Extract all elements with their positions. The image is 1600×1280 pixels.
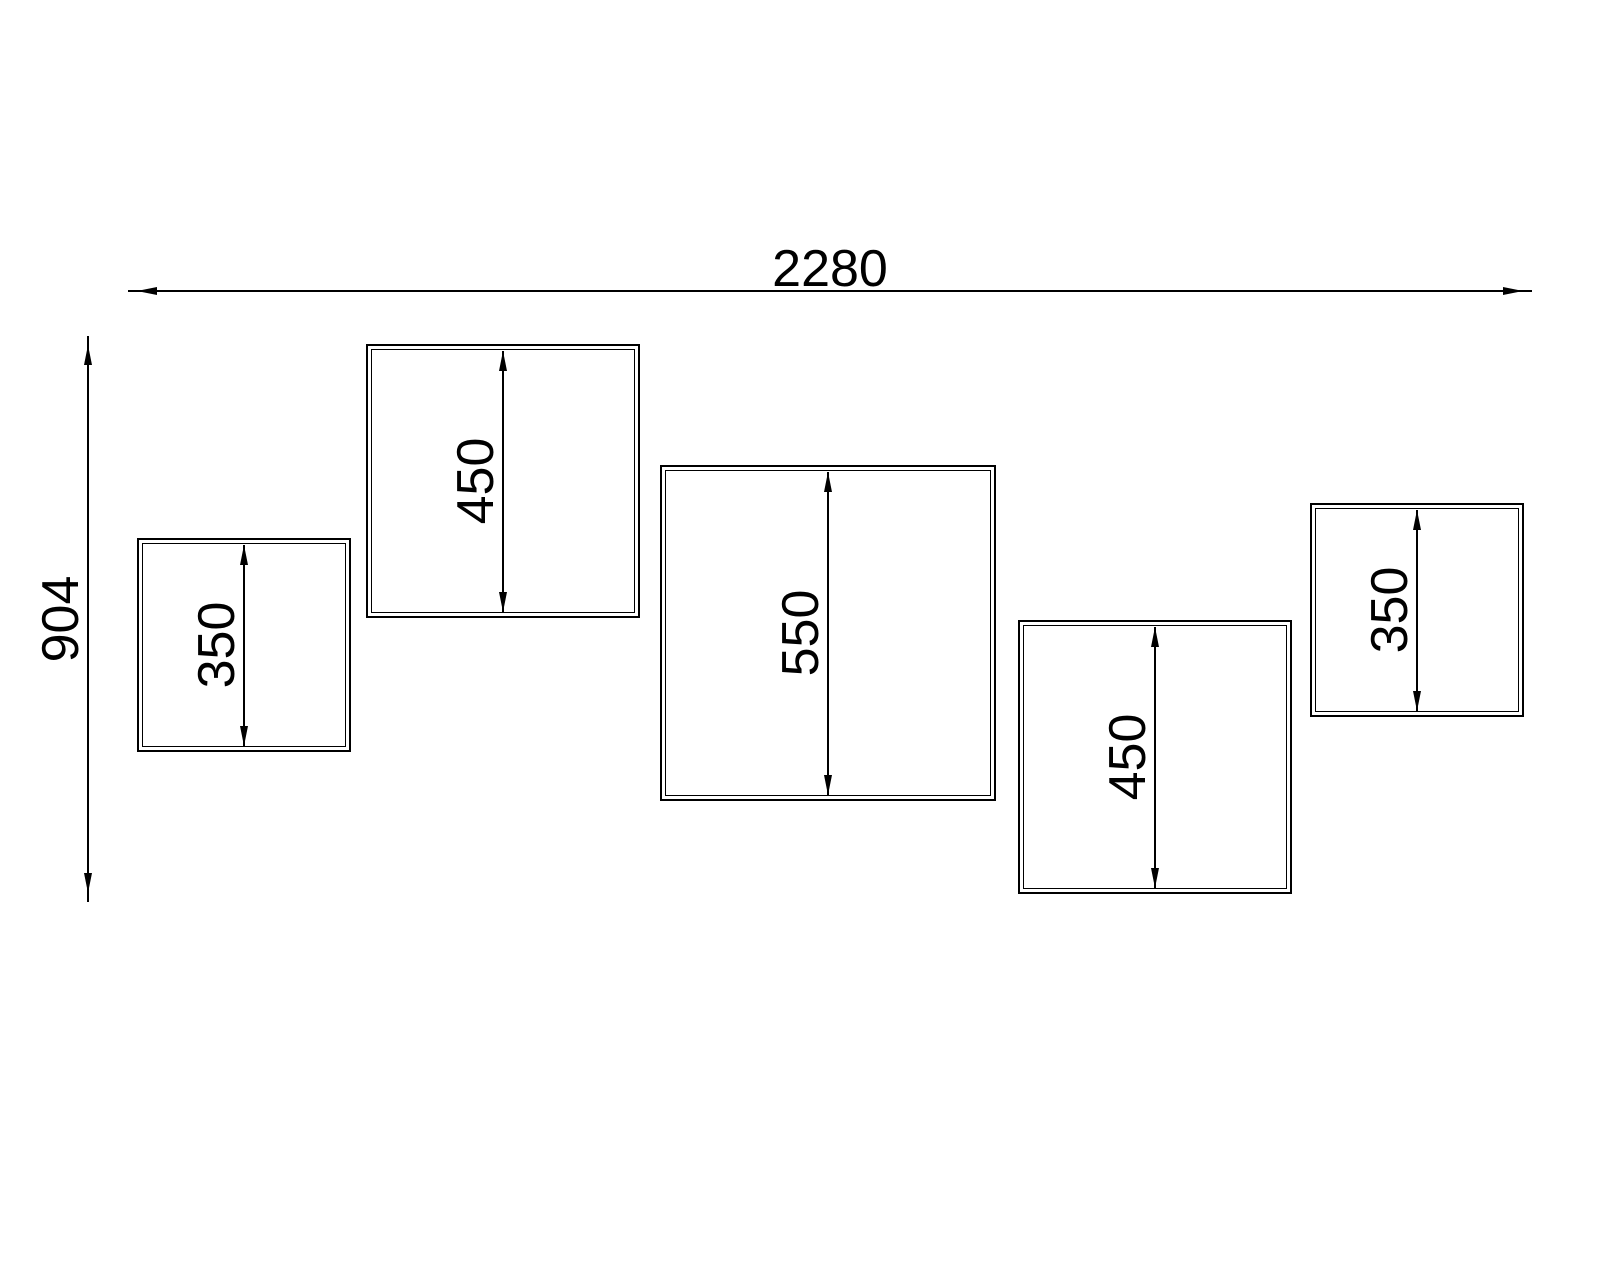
arrow-up-icon [84,345,92,365]
arrow-down-icon [824,775,832,795]
panel-5-height-label: 350 [1364,567,1416,654]
panel-2: 450 [366,344,640,618]
overall-height-label: 904 [35,576,87,663]
dimension-overshoot [128,290,137,292]
overall-width-label: 2280 [772,243,888,295]
drawing-canvas: 2280 904 350 450 [0,0,1600,1280]
arrow-down-icon [240,726,248,746]
panel-3-height-label: 550 [775,590,827,677]
dimension-overshoot [1523,290,1532,292]
dimension-overshoot [87,893,89,902]
panel-5: 350 [1310,503,1524,717]
arrow-left-icon [137,287,157,295]
arrow-down-icon [1413,691,1421,711]
panel-1: 350 [137,538,351,752]
arrow-down-icon [1151,868,1159,888]
arrow-up-icon [1151,627,1159,647]
arrow-up-icon [824,472,832,492]
panel-3: 550 [660,465,996,801]
arrow-up-icon [499,351,507,371]
panel-2-height-label: 450 [450,438,502,525]
panel-4-height-label: 450 [1102,714,1154,801]
arrow-down-icon [499,592,507,612]
panel-1-height-label: 350 [191,602,243,689]
arrow-up-icon [240,545,248,565]
dimension-overshoot [87,336,89,345]
arrow-right-icon [1503,287,1523,295]
arrow-down-icon [84,873,92,893]
panel-4: 450 [1018,620,1292,894]
arrow-up-icon [1413,510,1421,530]
